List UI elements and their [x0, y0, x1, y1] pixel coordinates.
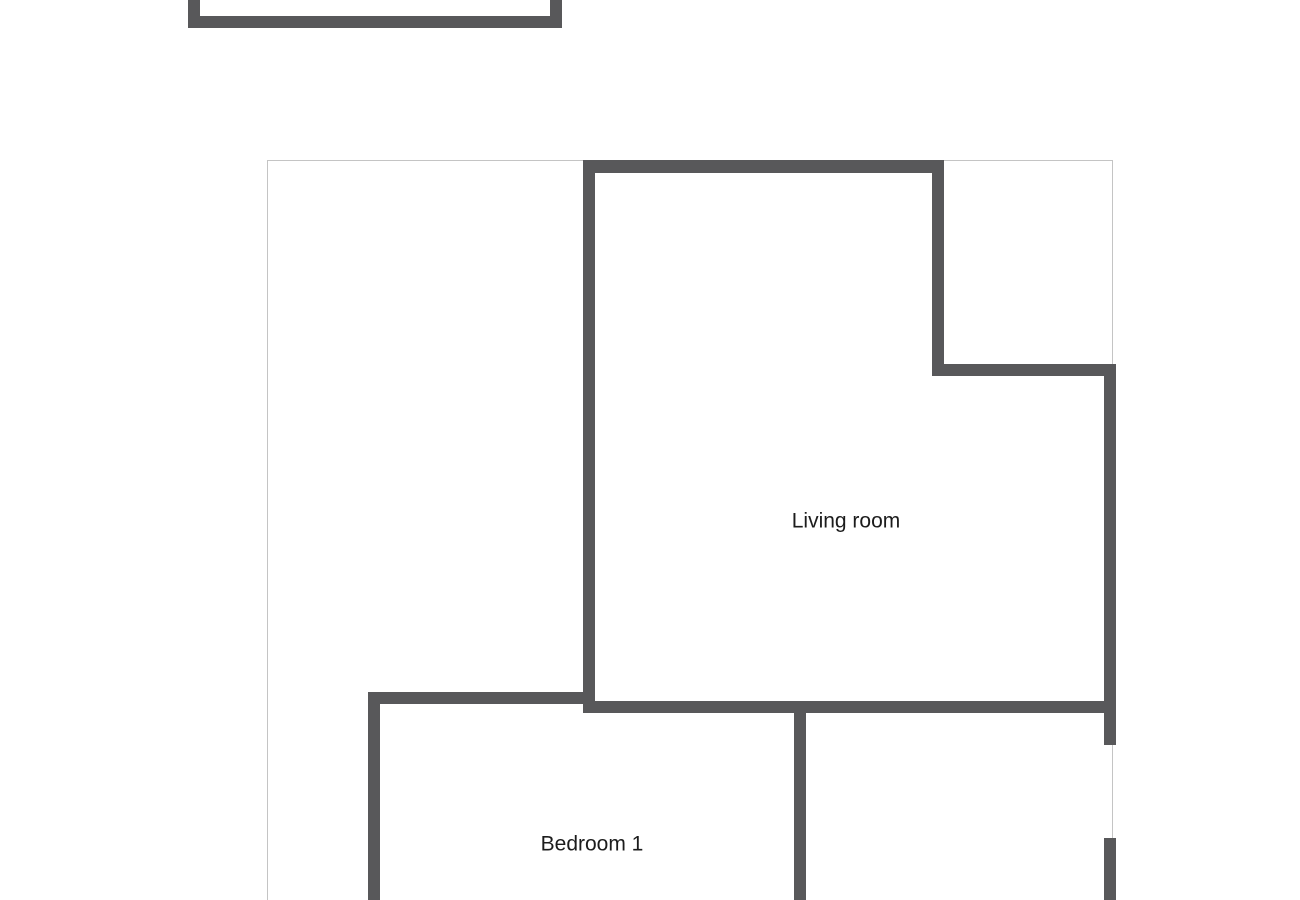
wall-segment — [583, 701, 1116, 713]
wall-segment — [583, 160, 944, 173]
floorplan-canvas: Living room Bedroom 1 — [0, 0, 1300, 900]
wall-segment — [368, 692, 595, 704]
wall-segment — [583, 160, 595, 713]
wall-segment — [368, 692, 380, 900]
plan-outline — [267, 160, 1113, 900]
wall-segment — [932, 364, 1116, 376]
wall-segment — [1104, 364, 1116, 745]
wall-segment — [1104, 838, 1116, 900]
wall-segment — [932, 160, 944, 376]
room-label-bedroom-1: Bedroom 1 — [541, 832, 644, 855]
wall-segment — [794, 704, 806, 900]
room-label-living-room: Living room — [792, 509, 901, 532]
wall-segment — [188, 16, 562, 28]
